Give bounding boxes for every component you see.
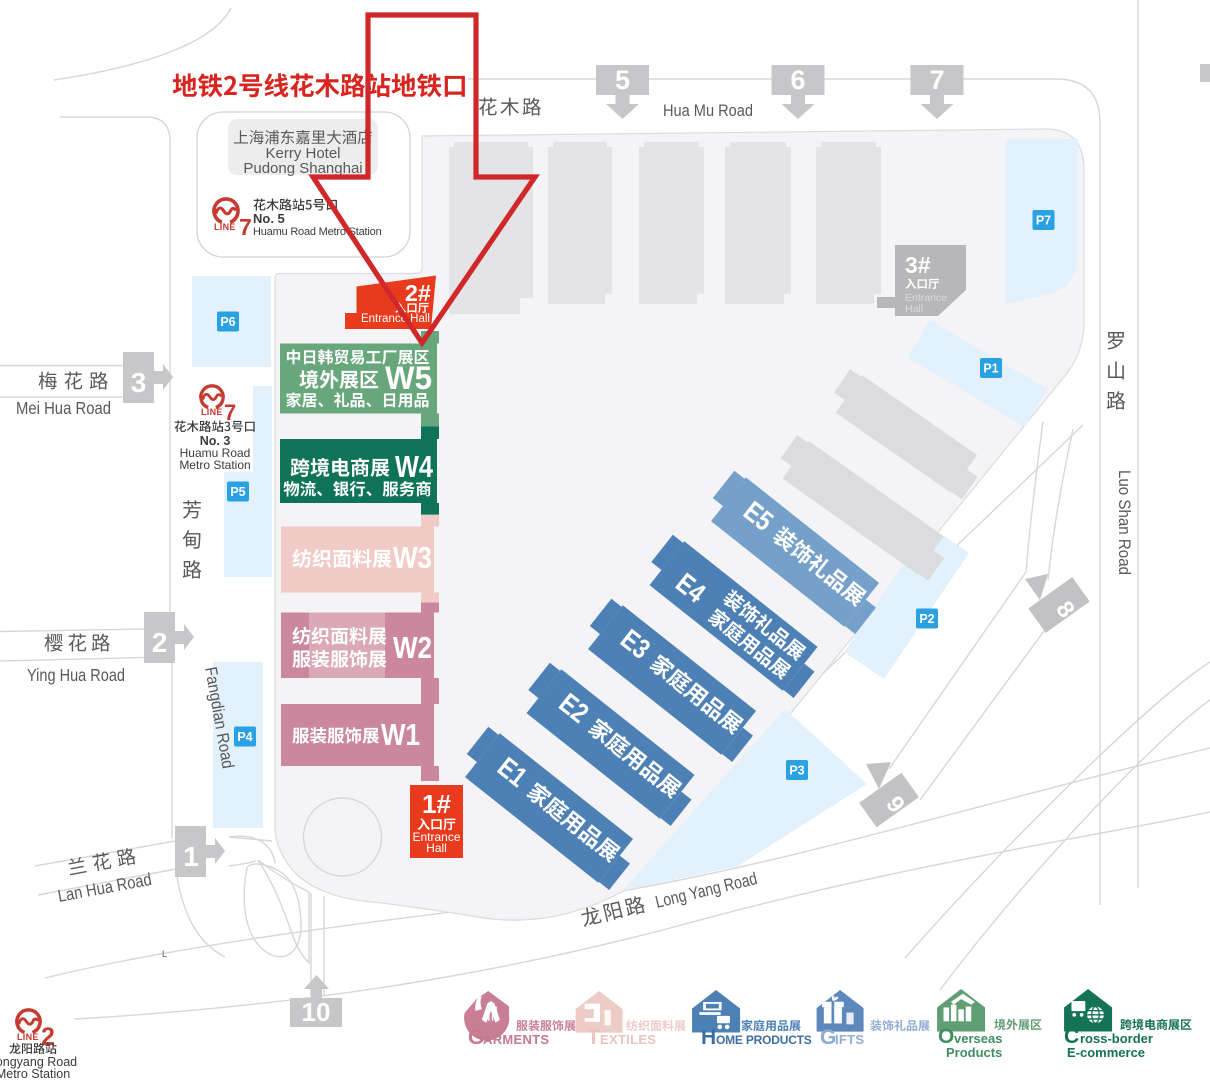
svg-text:L: L: [162, 949, 167, 959]
svg-text:G: G: [820, 1026, 836, 1049]
svg-text:W2: W2: [393, 630, 432, 665]
svg-text:1#: 1#: [422, 789, 451, 819]
svg-text:P2: P2: [919, 612, 934, 626]
svg-text:Entrance Hall: Entrance Hall: [361, 313, 430, 325]
svg-text:W5: W5: [385, 360, 432, 396]
svg-text:6: 6: [790, 65, 805, 95]
svg-text:P7: P7: [1036, 214, 1051, 228]
svg-text:EXTILES: EXTILES: [600, 1032, 656, 1047]
svg-text:Hall: Hall: [426, 841, 447, 855]
svg-text:2: 2: [152, 627, 168, 658]
svg-text:P5: P5: [230, 485, 245, 499]
svg-text:IFTS: IFTS: [835, 1032, 864, 1047]
svg-text:Hall: Hall: [905, 303, 923, 315]
svg-text:T: T: [587, 1026, 600, 1049]
svg-text:10: 10: [302, 997, 331, 1027]
svg-text:verseas: verseas: [954, 1031, 1002, 1046]
svg-text:Products: Products: [946, 1045, 1002, 1060]
svg-text:3#: 3#: [905, 252, 931, 278]
svg-text:P4: P4: [237, 730, 252, 744]
svg-text:2#: 2#: [405, 280, 431, 306]
svg-text:Hua Mu Road: Hua Mu Road: [663, 101, 753, 120]
svg-text:7: 7: [929, 65, 944, 95]
svg-text:W3: W3: [393, 540, 432, 575]
svg-text:H: H: [701, 1026, 716, 1049]
svg-text:LINE: LINE: [214, 222, 236, 232]
svg-text:3: 3: [131, 367, 147, 398]
svg-text:W1: W1: [381, 717, 420, 752]
svg-text:ARMENTS: ARMENTS: [483, 1032, 549, 1047]
svg-text:LINE: LINE: [17, 1032, 39, 1042]
svg-text:Metro Station: Metro Station: [179, 458, 250, 472]
svg-text:1: 1: [183, 841, 199, 872]
svg-text:Metro Station: Metro Station: [0, 1067, 70, 1080]
svg-text:Luo Shan Road: Luo Shan Road: [1115, 470, 1134, 575]
svg-text:P1: P1: [983, 362, 998, 376]
svg-text:No. 5: No. 5: [253, 211, 285, 226]
svg-text:Ying Hua Road: Ying Hua Road: [27, 665, 125, 685]
svg-text:P3: P3: [789, 764, 804, 778]
svg-text:Mei Hua Road: Mei Hua Road: [16, 398, 111, 418]
svg-text:OME PRODUCTS: OME PRODUCTS: [716, 1033, 812, 1047]
svg-text:7: 7: [239, 214, 252, 240]
svg-text:ross-border: ross-border: [1080, 1031, 1153, 1046]
svg-text:5: 5: [615, 65, 630, 95]
svg-text:Huamu Road Metro Station: Huamu Road Metro Station: [253, 226, 382, 238]
svg-text:LINE: LINE: [201, 407, 223, 417]
svg-text:P6: P6: [220, 315, 235, 329]
svg-text:G: G: [468, 1026, 484, 1049]
svg-text:W4: W4: [395, 449, 434, 484]
svg-text:E-commerce: E-commerce: [1067, 1045, 1145, 1060]
